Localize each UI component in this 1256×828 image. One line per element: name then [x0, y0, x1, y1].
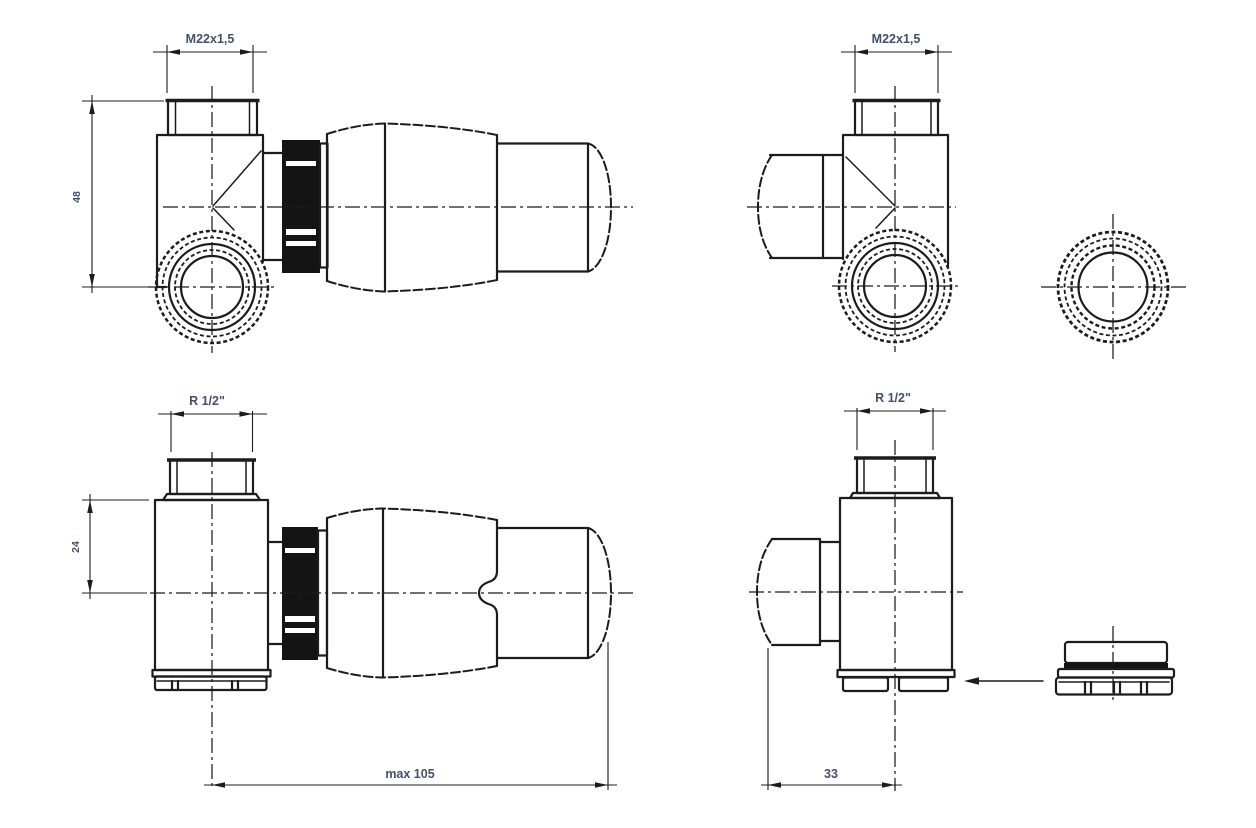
thread-connection-top [853, 101, 941, 136]
dimension-arrow [857, 408, 870, 414]
dimension-arrow [882, 782, 895, 788]
view-top-left-valve-side: M22x1,5 48 [71, 32, 633, 353]
union-nut-side [838, 670, 955, 691]
dimension-arrow [167, 49, 180, 55]
view-bottom-left-valve-front: R 1/2" 24 [70, 394, 633, 790]
valve-seat-diagonal [213, 151, 261, 206]
dimension-thread-m22-right: M22x1,5 [841, 32, 952, 93]
dimension-arrow [87, 580, 93, 593]
dimension-text-m22: M22x1,5 [872, 32, 921, 46]
dimension-arrow [89, 274, 95, 287]
dimension-text-m22: M22x1,5 [186, 32, 235, 46]
technical-drawing-canvas: M22x1,5 48 [0, 0, 1256, 828]
union-nut-end-view [1041, 214, 1186, 361]
dimension-arrow [925, 49, 938, 55]
dimension-arrow [595, 782, 608, 788]
dimension-text-max105: max 105 [385, 767, 434, 781]
dimension-arrow [240, 49, 253, 55]
dimension-arrow [212, 782, 225, 788]
valve-body [155, 500, 282, 670]
dimension-length-max105: max 105 [204, 642, 617, 790]
dimension-height-48: 48 [71, 95, 164, 293]
dimension-thread-m22-left: M22x1,5 [153, 32, 267, 93]
view-top-right-valve-rear: M22x1,5 [747, 32, 1186, 361]
dimension-arrow [920, 408, 933, 414]
dimension-arrow [171, 411, 184, 417]
valve-seat-diagonal [213, 208, 234, 230]
dimension-arrow [855, 49, 868, 55]
dimension-arrow [240, 411, 253, 417]
detail-pointer-arrow [964, 677, 1043, 684]
dimension-text-48: 48 [71, 191, 83, 203]
dimension-arrow [768, 782, 781, 788]
dimension-arrow [89, 101, 95, 114]
technical-drawing-page: M22x1,5 48 [0, 0, 1256, 828]
dimension-text-33: 33 [824, 767, 838, 781]
dimension-text-r12: R 1/2" [189, 394, 225, 408]
valve-body [840, 498, 952, 670]
dimension-arrow [87, 500, 93, 513]
valve-seat-diagonal [846, 157, 895, 206]
dimension-text-24: 24 [70, 541, 82, 553]
view-bottom-right-valve-rear: R 1/2" [749, 391, 1174, 791]
dimension-height-24: 24 [70, 494, 149, 599]
valve-seat-diagonal [876, 208, 895, 228]
dimension-thread-r12-left: R 1/2" [158, 394, 267, 452]
dimension-text-r12: R 1/2" [875, 391, 911, 405]
separate-union-nut [1056, 626, 1174, 704]
